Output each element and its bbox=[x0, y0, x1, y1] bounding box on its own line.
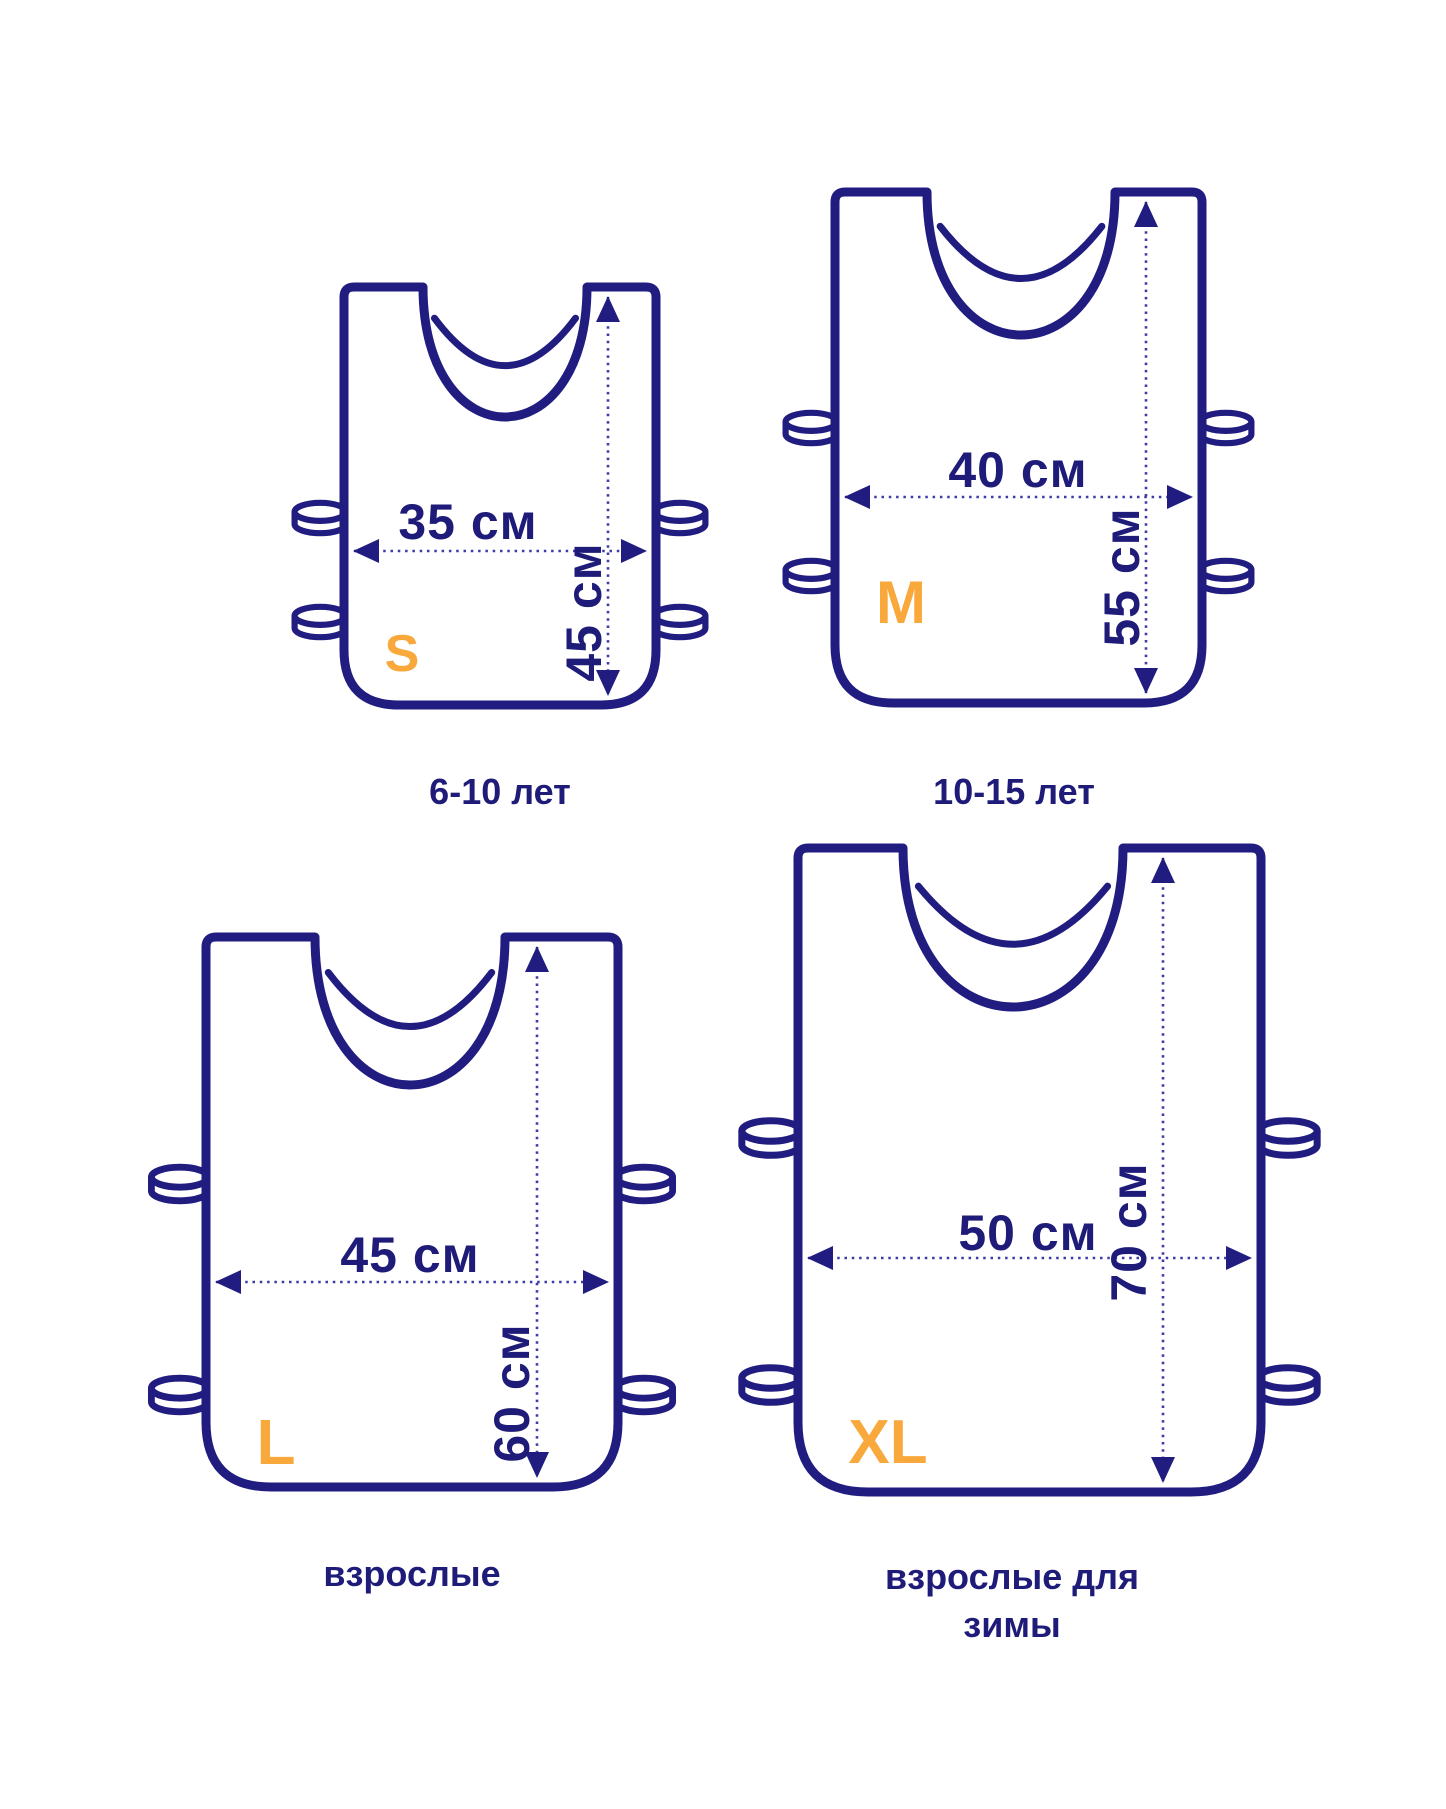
side-loop-left bbox=[742, 1121, 800, 1156]
loop-opening bbox=[786, 413, 837, 431]
size-letter-l: L bbox=[256, 1410, 295, 1474]
height-label-l: 60 см bbox=[487, 1323, 537, 1462]
height-label-s: 45 см bbox=[559, 542, 609, 681]
size-diagram-svg bbox=[0, 0, 1446, 1809]
loop-opening bbox=[1200, 413, 1251, 431]
width-label-xl: 50 см bbox=[958, 1208, 1097, 1258]
side-loop-right bbox=[1259, 1368, 1317, 1403]
side-loop-left bbox=[742, 1368, 800, 1403]
loop-opening bbox=[742, 1368, 800, 1389]
side-loop-right bbox=[1200, 561, 1251, 591]
vest-xl bbox=[742, 848, 1317, 1492]
loop-opening bbox=[151, 1378, 208, 1398]
vest-l bbox=[151, 937, 672, 1487]
height-label-xl: 70 см bbox=[1104, 1162, 1154, 1301]
loop-opening bbox=[786, 561, 837, 579]
side-loop-left bbox=[786, 561, 837, 591]
loop-opening bbox=[151, 1167, 208, 1187]
age-label-l: взрослые bbox=[323, 1556, 500, 1592]
age-label-s: 6-10 лет bbox=[429, 774, 571, 810]
loop-opening bbox=[295, 503, 346, 521]
loop-opening bbox=[654, 503, 705, 521]
loop-opening bbox=[616, 1167, 673, 1187]
side-loop-left bbox=[295, 607, 346, 637]
neckline-inner-arc bbox=[328, 973, 491, 1027]
age-label-m: 10-15 лет bbox=[933, 774, 1095, 810]
size-letter-xl: XL bbox=[848, 1412, 927, 1474]
loop-opening bbox=[616, 1378, 673, 1398]
side-loop-right bbox=[616, 1167, 673, 1201]
width-label-s: 35 см bbox=[398, 497, 537, 547]
side-loop-left bbox=[151, 1167, 208, 1201]
side-loop-left bbox=[295, 503, 346, 533]
neckline-inner-arc bbox=[940, 226, 1102, 278]
loop-opening bbox=[1259, 1121, 1317, 1142]
loop-opening bbox=[654, 607, 705, 625]
loop-opening bbox=[295, 607, 346, 625]
size-letter-m: M bbox=[876, 573, 926, 633]
side-loop-right bbox=[1259, 1121, 1317, 1156]
loop-opening bbox=[1200, 561, 1251, 579]
side-loop-right bbox=[654, 503, 705, 533]
vest-outline bbox=[206, 937, 618, 1487]
vest-size-chart: 35 см45 смS6-10 лет40 см55 смM10-15 лет4… bbox=[0, 0, 1446, 1809]
age-label-xl-line2: зимы bbox=[963, 1607, 1060, 1643]
height-label-m: 55 см bbox=[1097, 507, 1147, 646]
width-label-m: 40 см bbox=[948, 445, 1087, 495]
neckline-inner-arc bbox=[918, 886, 1107, 944]
loop-opening bbox=[742, 1121, 800, 1142]
size-letter-s: S bbox=[385, 628, 420, 680]
side-loop-right bbox=[654, 607, 705, 637]
side-loop-left bbox=[786, 413, 837, 443]
side-loop-right bbox=[616, 1378, 673, 1412]
age-label-xl-line1: взрослые для bbox=[885, 1559, 1139, 1595]
side-loop-left bbox=[151, 1378, 208, 1412]
side-loop-right bbox=[1200, 413, 1251, 443]
loop-opening bbox=[1259, 1368, 1317, 1389]
width-label-l: 45 см bbox=[340, 1230, 479, 1280]
neckline-inner-arc bbox=[434, 318, 575, 365]
